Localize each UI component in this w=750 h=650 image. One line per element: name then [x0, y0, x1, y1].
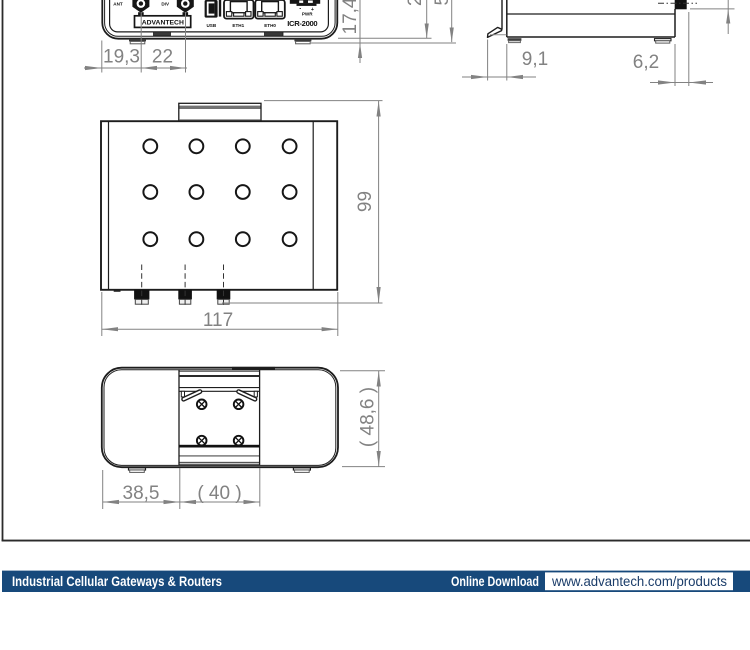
- svg-text:ETH0: ETH0: [264, 23, 276, 28]
- svg-text:ANT: ANT: [113, 2, 123, 7]
- svg-text:Online Download: Online Download: [451, 574, 539, 589]
- svg-text:19,3: 19,3: [103, 47, 140, 68]
- svg-text:117: 117: [203, 310, 233, 331]
- svg-text:99: 99: [355, 191, 376, 212]
- svg-text:USB: USB: [206, 23, 216, 28]
- svg-text:38,5: 38,5: [123, 483, 160, 504]
- svg-text:9,1: 9,1: [522, 49, 548, 70]
- svg-text:53,1: 53,1: [432, 0, 453, 5]
- svg-text:6,2: 6,2: [633, 52, 659, 73]
- svg-text:( 48,6 ): ( 48,6 ): [358, 387, 379, 447]
- svg-text:17,4: 17,4: [340, 0, 361, 34]
- svg-text:( 40 ): ( 40 ): [197, 483, 241, 504]
- svg-text:PWR: PWR: [302, 12, 313, 17]
- svg-text:www.advantech.com/products: www.advantech.com/products: [551, 574, 727, 589]
- svg-text:24: 24: [405, 0, 426, 6]
- svg-text:22: 22: [152, 47, 173, 68]
- svg-text:ICR-2000: ICR-2000: [287, 19, 317, 28]
- svg-text:ADVANTECH: ADVANTECH: [142, 20, 184, 27]
- svg-text:DIV: DIV: [161, 2, 170, 7]
- svg-text:ETH1: ETH1: [232, 23, 244, 28]
- svg-text:Industrial Cellular Gateways &: Industrial Cellular Gateways & Routers: [12, 574, 222, 589]
